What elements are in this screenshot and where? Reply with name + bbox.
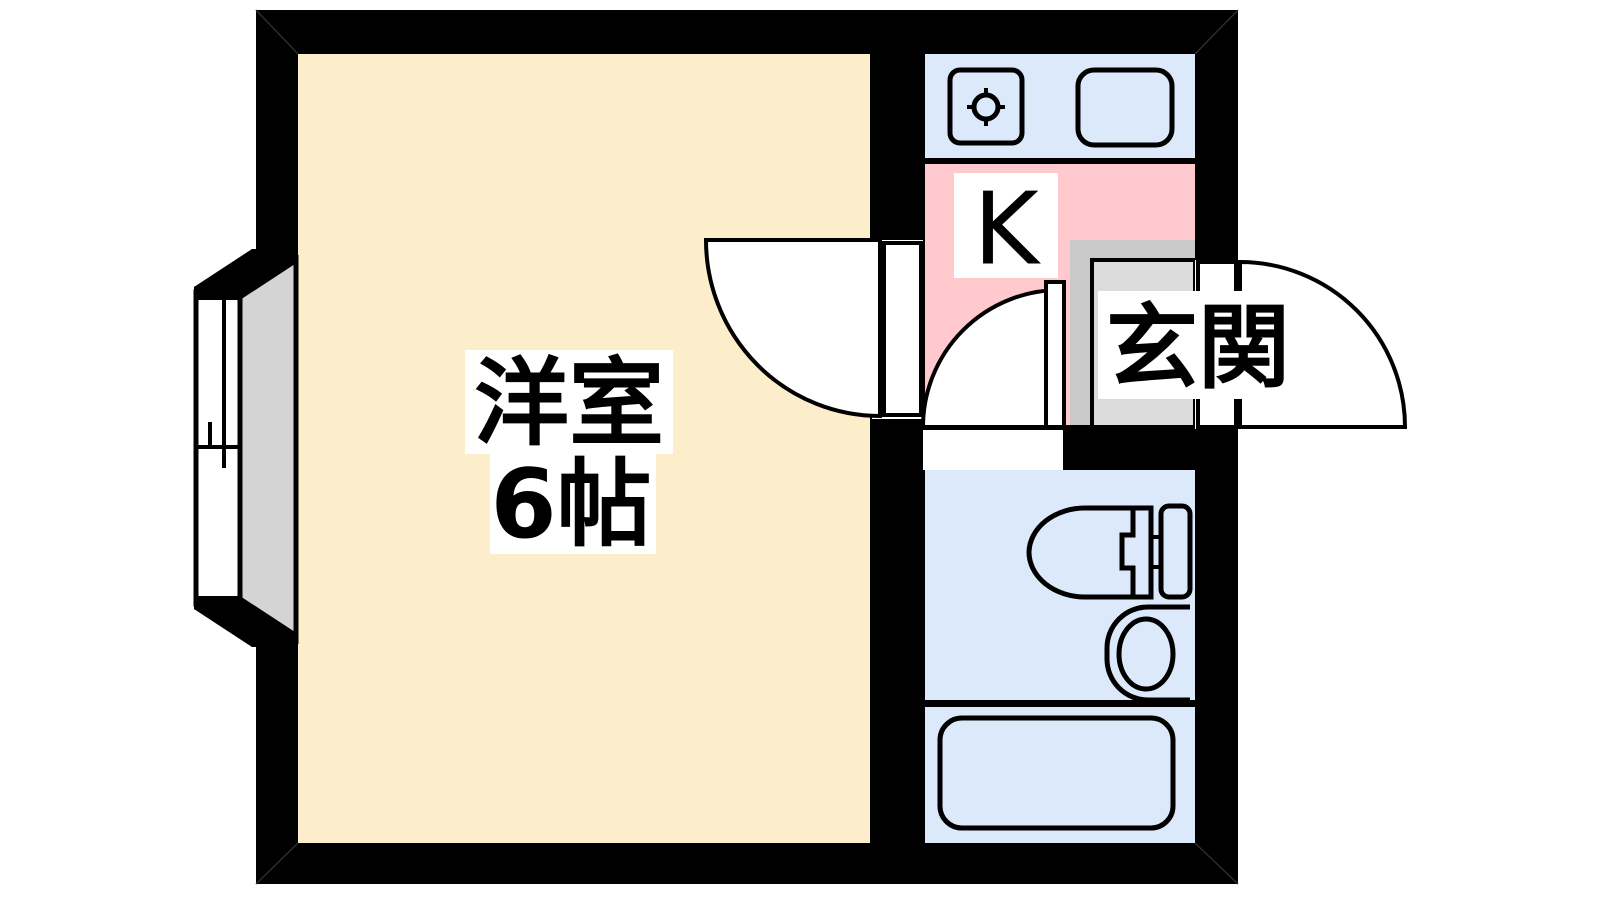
floor-plan: 洋室 6帖 K 玄関 [0,0,1600,900]
wall-left-upper [256,10,298,251]
wall-top [256,10,1238,54]
kitchen-label: K [973,171,1041,288]
bay-floor [240,256,296,644]
main-room-label: 洋室 [474,349,664,459]
kitchen-counter-edge [923,158,1195,164]
entrance-label: 玄関 [1106,295,1290,402]
sink-drain-icon [974,95,998,119]
wall-right [1195,10,1238,884]
main-room-door-leaf [884,243,921,415]
toilet-tank-icon [1161,506,1190,597]
stove-icon [1078,70,1172,145]
wall-bottom [256,843,1238,884]
kitchen-door-leaf [1046,282,1064,427]
wall-left-lower [256,645,298,884]
wash-basin-bowl-icon [1119,619,1173,689]
floor-plan-drawing: 洋室 6帖 K 玄関 [0,0,1600,900]
main-room-size-label: 6帖 [490,450,651,560]
passage-to-bathroom [923,430,1063,470]
bathtub-icon [940,718,1173,828]
